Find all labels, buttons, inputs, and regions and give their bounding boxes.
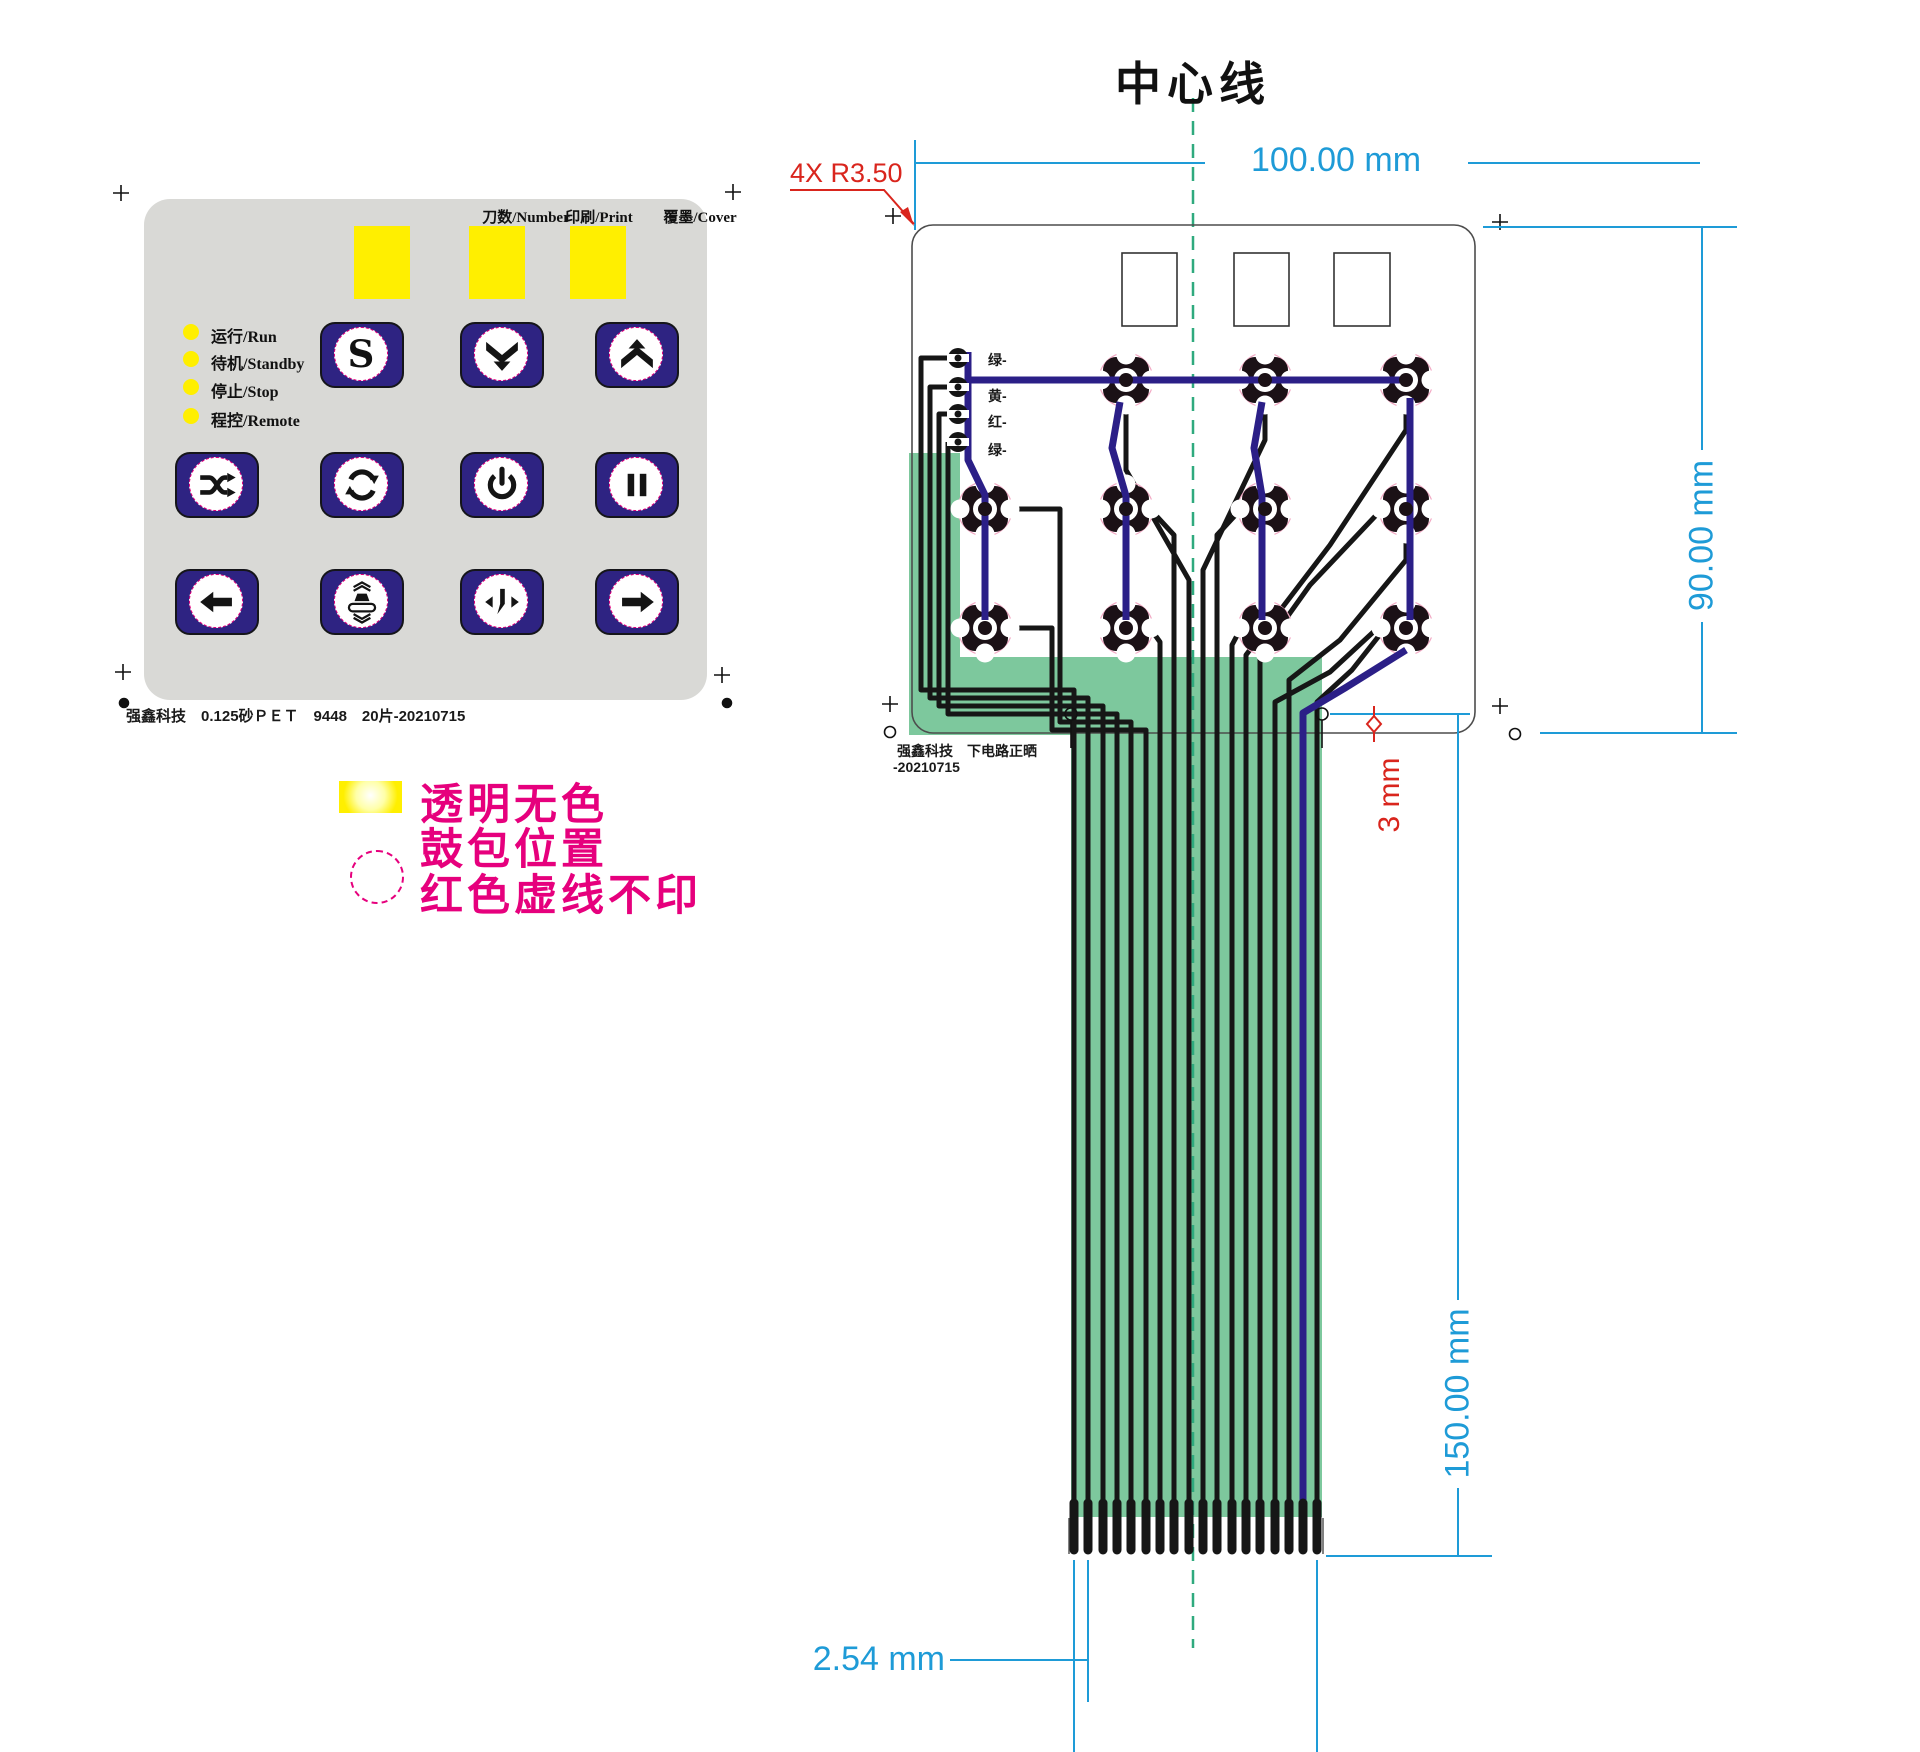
circuit-footer-line1: 强鑫科技 下电路正晒	[897, 741, 1037, 761]
header-cover: 覆墨/Cover	[630, 206, 770, 227]
dim-hole-label: 3 mm	[1373, 735, 1407, 855]
window-number	[354, 226, 410, 299]
legend-line3: 红色虚线不印	[420, 861, 702, 923]
window-cover	[570, 226, 626, 299]
led-label-run: 运行/Run	[211, 323, 277, 347]
key-press[interactable]	[320, 569, 404, 635]
circuit-led-label-3: 红-	[988, 412, 1007, 432]
led-label-remote: 程控/Remote	[211, 407, 300, 431]
panel-footer-text: 强鑫科技 0.125砂ＰＥＴ 9448 20片-20210715	[126, 705, 465, 726]
key-right[interactable]	[595, 569, 679, 635]
legend-dashed-circle	[350, 850, 404, 904]
led-run	[183, 324, 199, 340]
window-print	[469, 226, 525, 299]
circuit-led-label-2: 黄-	[988, 386, 1007, 406]
dim-tail-length-label: 150.00 mm	[1439, 1284, 1478, 1504]
key-shuffle[interactable]	[175, 452, 259, 518]
dim-pitch-label: 2.54 mm	[745, 1640, 945, 1679]
led-standby	[183, 351, 199, 367]
key-power[interactable]	[460, 452, 544, 518]
key-cycle[interactable]	[320, 452, 404, 518]
key-double-down[interactable]	[460, 322, 544, 388]
key-pause[interactable]	[595, 452, 679, 518]
pad-centers	[978, 373, 1413, 635]
s-key-icon: S	[334, 327, 388, 381]
led-stop	[183, 379, 199, 395]
circuit-led-label-1: 绿-	[988, 350, 1007, 370]
key-left[interactable]	[175, 569, 259, 635]
display-windows	[1122, 253, 1390, 326]
circuit-led-label-4: 绿-	[988, 440, 1007, 460]
dim-width-label: 100.00 mm	[1216, 141, 1456, 180]
dim-corner-radius-label: 4X R3.50	[790, 158, 903, 189]
dim-height-label: 90.00 mm	[1683, 436, 1722, 636]
contact-pads	[951, 346, 1441, 663]
legend-window-swatch	[339, 781, 402, 813]
key-s[interactable]: S	[320, 322, 404, 388]
keypad-panel: 刀数/Number 印刷/Print 覆墨/Cover 运行/Run 待机/St…	[144, 199, 707, 700]
key-align[interactable]	[460, 569, 544, 635]
drawing-canvas: 刀数/Number 印刷/Print 覆墨/Cover 运行/Run 待机/St…	[0, 0, 1920, 1752]
key-double-up[interactable]	[595, 322, 679, 388]
led-label-standby: 待机/Standby	[211, 350, 304, 374]
led-remote	[183, 408, 199, 424]
led-label-stop: 停止/Stop	[211, 378, 279, 402]
circuit-footer-line2: -20210715	[893, 759, 960, 775]
centerline-title: 中心线	[1093, 48, 1293, 114]
